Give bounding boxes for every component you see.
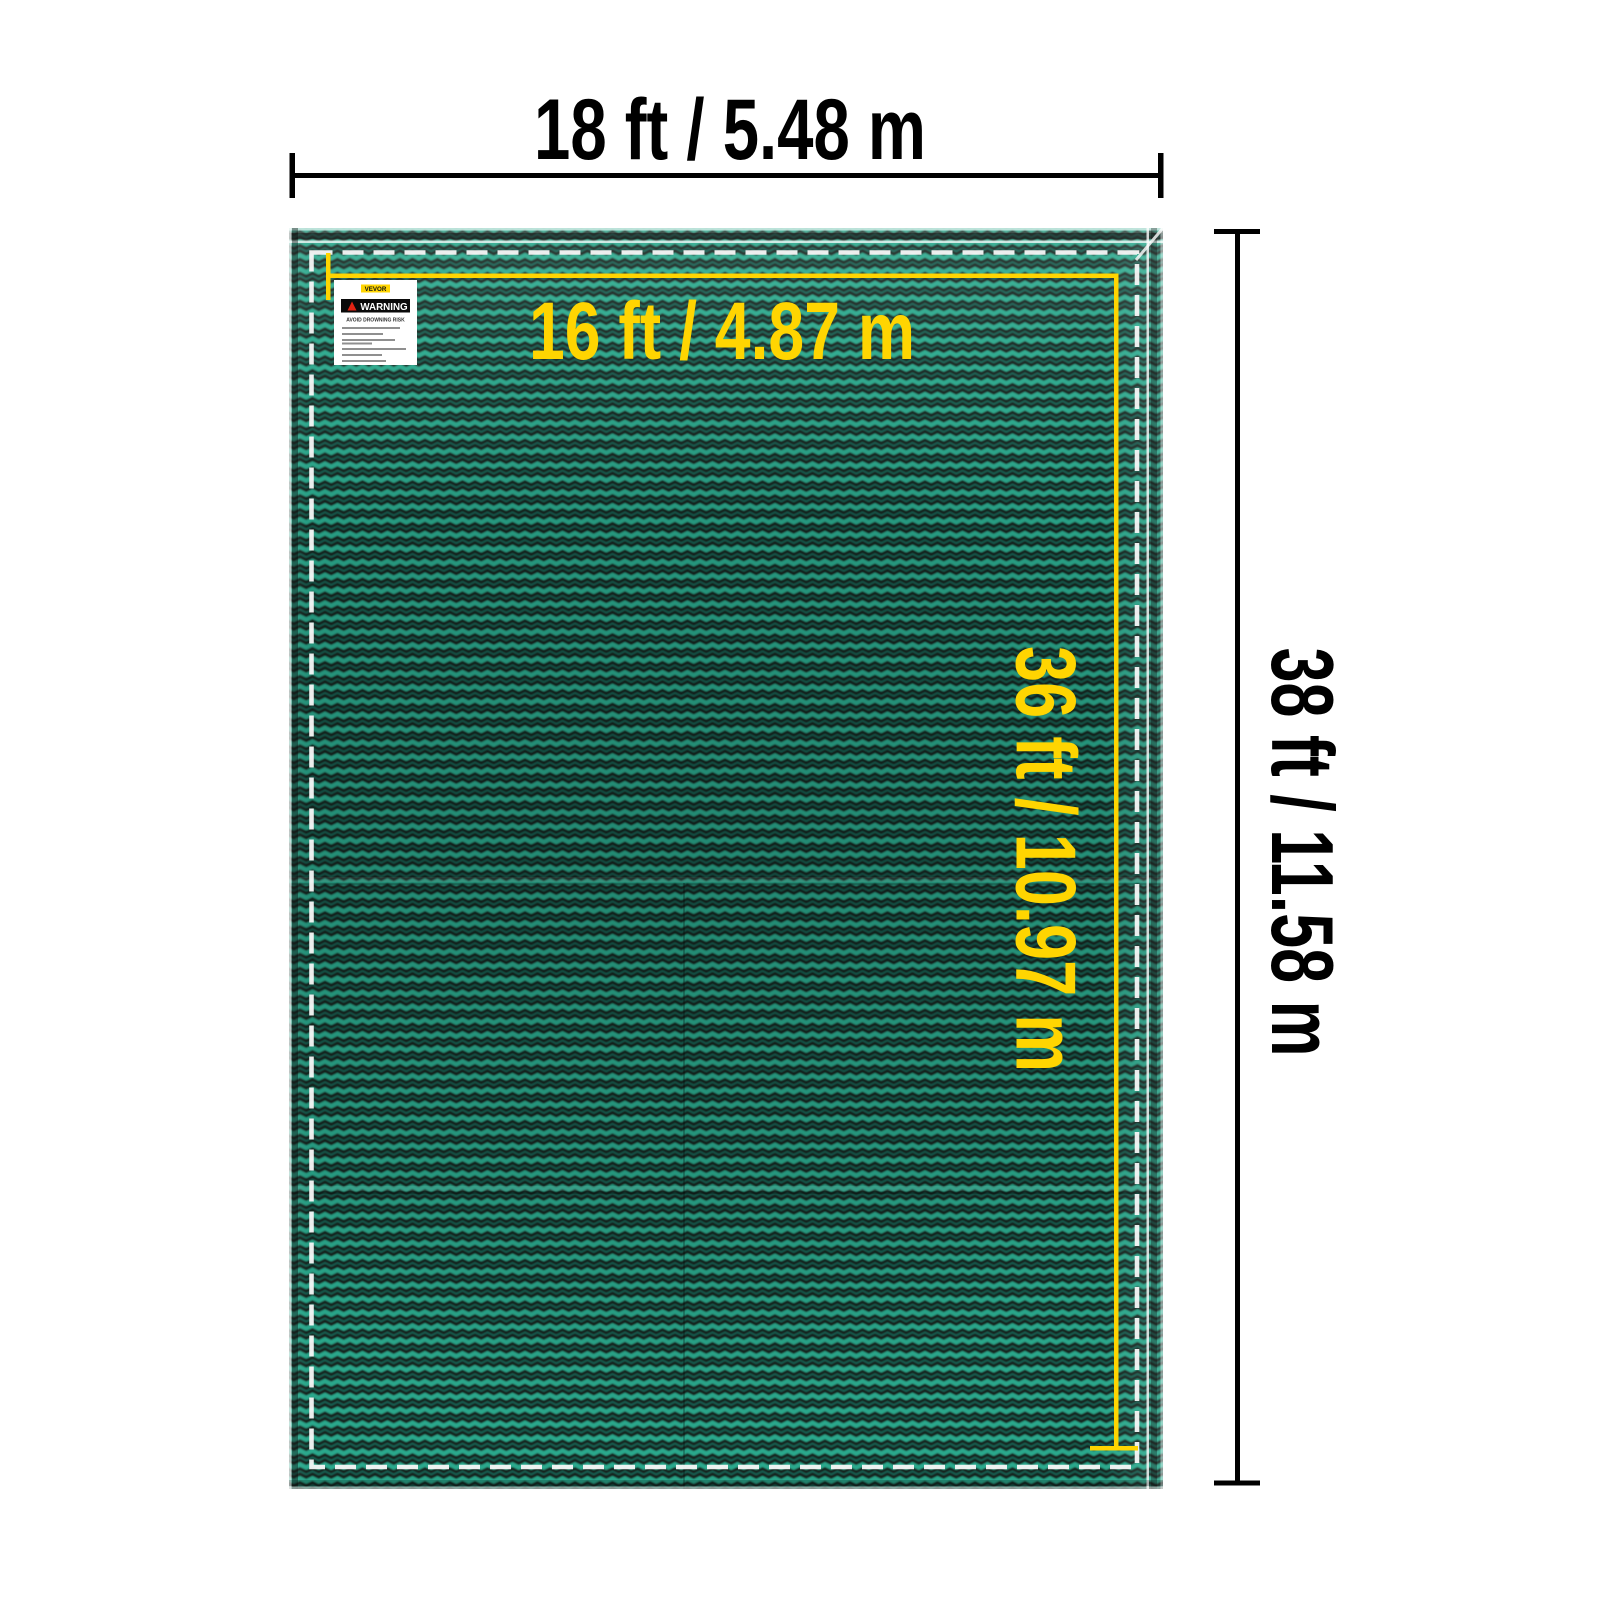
svg-text:VEVOR: VEVOR [365, 286, 387, 293]
svg-text:36 ft / 10.97 m: 36 ft / 10.97 m [998, 646, 1093, 1072]
svg-text:18 ft / 5.48 m: 18 ft / 5.48 m [534, 82, 926, 178]
svg-text:38 ft / 11.58 m: 38 ft / 11.58 m [1253, 648, 1352, 1057]
svg-text:16 ft / 4.87 m: 16 ft / 4.87 m [529, 286, 915, 377]
svg-text:AVOID DROWNING RISK: AVOID DROWNING RISK [346, 318, 405, 324]
svg-text:WARNING: WARNING [360, 302, 408, 313]
